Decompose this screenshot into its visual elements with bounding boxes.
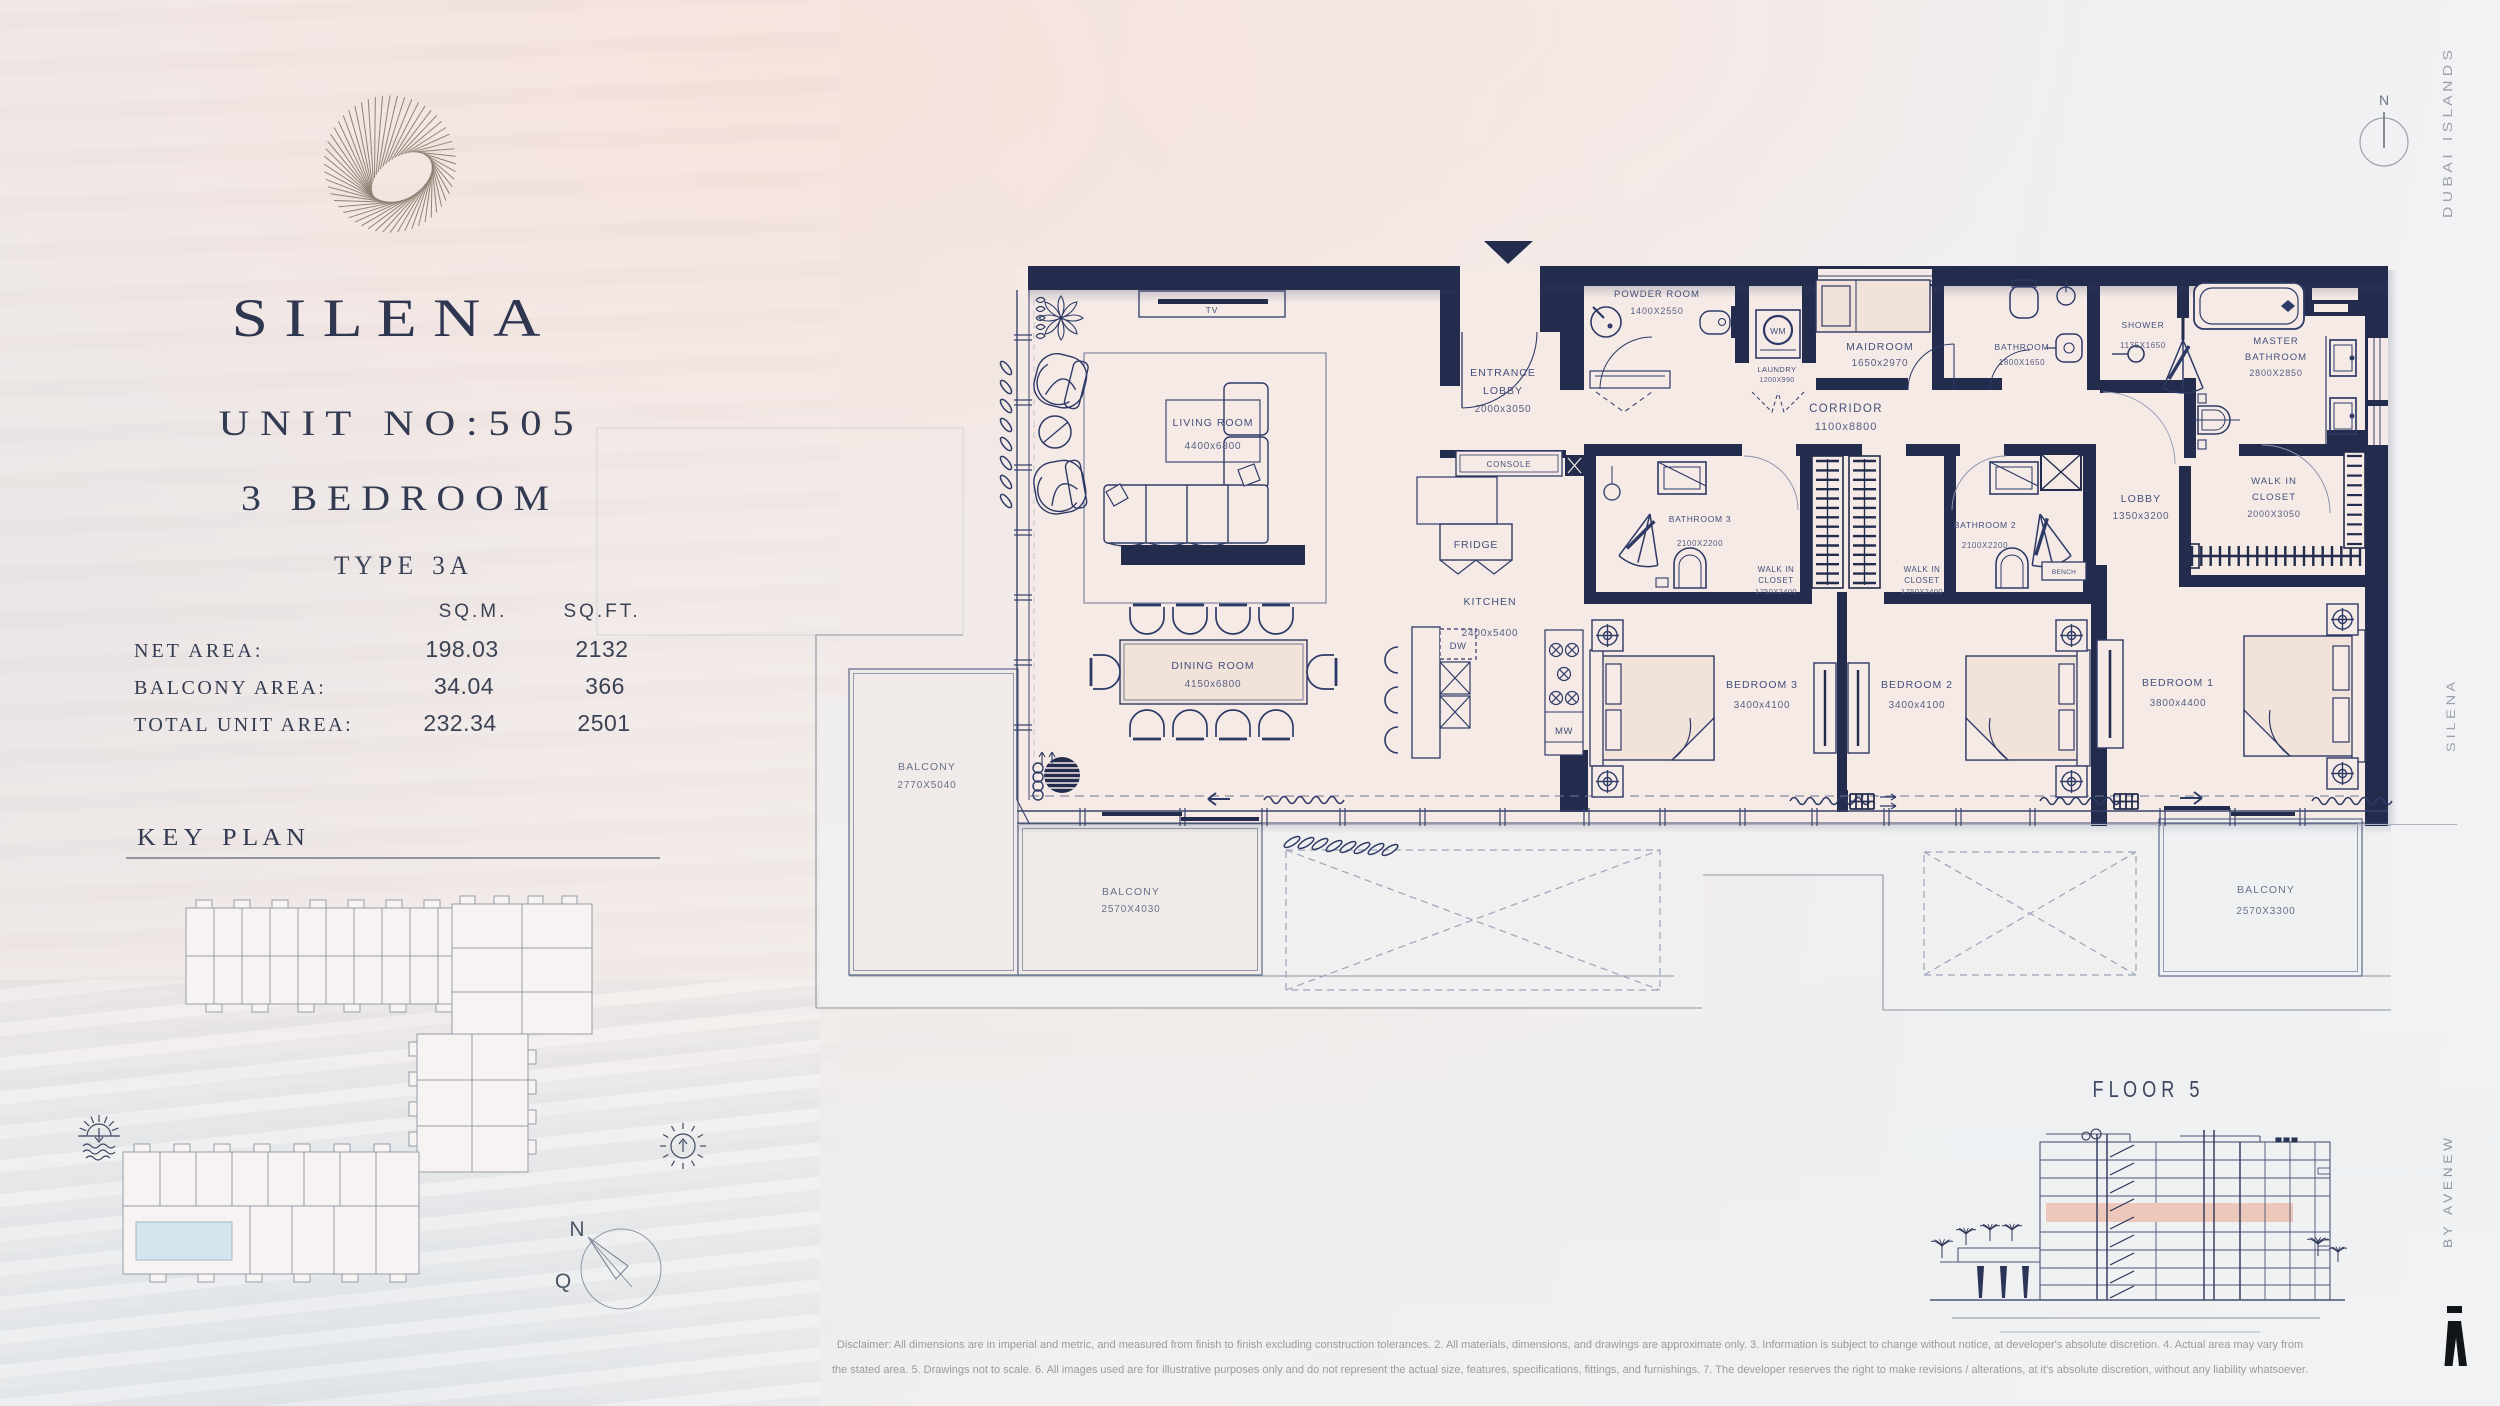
svg-text:2800X2850: 2800X2850 [2249, 368, 2302, 378]
svg-text:CLOSET: CLOSET [1904, 576, 1940, 585]
svg-text:BALCONY: BALCONY [2237, 884, 2295, 896]
svg-text:BEDROOM 2: BEDROOM 2 [1881, 679, 1953, 691]
svg-text:BALCONY AREA:: BALCONY AREA: [134, 677, 326, 699]
svg-text:N: N [2379, 92, 2389, 108]
svg-text:BATHROOM: BATHROOM [2245, 352, 2307, 363]
svg-text:2570X4030: 2570X4030 [1101, 904, 1160, 915]
svg-text:S I L E N A: S I L E N A [2444, 682, 2458, 752]
svg-text:FRIDGE: FRIDGE [1454, 539, 1498, 551]
svg-text:1100x8800: 1100x8800 [1815, 421, 1878, 433]
svg-text:2501: 2501 [577, 710, 630, 736]
svg-text:WM: WM [1770, 326, 1786, 336]
svg-text:2000x3050: 2000x3050 [1475, 404, 1532, 415]
svg-text:the stated area. 5. Drawings n: the stated area. 5. Drawings not to scal… [832, 1364, 2308, 1376]
svg-text:WALK IN: WALK IN [1904, 565, 1941, 574]
svg-text:1400X2550: 1400X2550 [1630, 306, 1683, 316]
svg-text:Q: Q [555, 1270, 571, 1293]
svg-text:BALCONY: BALCONY [1102, 886, 1160, 898]
svg-text:2770X5040: 2770X5040 [897, 780, 956, 791]
svg-text:N: N [569, 1218, 584, 1241]
svg-text:1800X1650: 1800X1650 [1999, 358, 2045, 367]
svg-text:1750X2400: 1750X2400 [1901, 587, 1943, 596]
svg-text:K E Y P L A N: K E Y P L A N [137, 825, 305, 851]
svg-text:TV: TV [1206, 305, 1219, 315]
svg-text:232.34: 232.34 [423, 710, 496, 736]
svg-text:BENCH: BENCH [2052, 569, 2076, 576]
svg-text:U N I T N O : 5 0 5: U N I T N O : 5 0 5 [219, 403, 574, 443]
svg-text:POWDER ROOM: POWDER ROOM [1614, 289, 1700, 300]
svg-text:LOBBY: LOBBY [2121, 493, 2162, 505]
svg-text:WALK IN: WALK IN [1758, 565, 1795, 574]
svg-text:LAUNDRY: LAUNDRY [1757, 365, 1796, 374]
svg-text:D U B A I I S L A N D S: D U B A I I S L A N D S [2440, 50, 2455, 218]
svg-text:CLOSET: CLOSET [2252, 492, 2296, 503]
svg-text:B Y A V E N E W: B Y A V E N E W [2441, 1137, 2455, 1248]
svg-text:BALCONY: BALCONY [898, 761, 956, 773]
svg-text:2100X2200: 2100X2200 [1677, 539, 1723, 548]
svg-text:DW: DW [1450, 641, 1467, 652]
svg-text:BEDROOM 3: BEDROOM 3 [1726, 679, 1798, 691]
svg-text:T Y P E 3 A: T Y P E 3 A [334, 551, 468, 580]
svg-text:3400x4100: 3400x4100 [1889, 700, 1946, 711]
svg-text:CONSOLE: CONSOLE [1487, 460, 1532, 469]
svg-text:2100X2200: 2100X2200 [1962, 541, 2008, 550]
svg-text:1350x3200: 1350x3200 [2113, 511, 2170, 522]
svg-text:2000X3050: 2000X3050 [2247, 509, 2300, 519]
svg-text:SQ.M.: SQ.M. [439, 601, 508, 622]
svg-text:1650x2970: 1650x2970 [1852, 358, 1909, 369]
svg-text:SHOWER: SHOWER [2121, 320, 2164, 330]
svg-text:Disclaimer: All dimensions are: Disclaimer: All dimensions are in imperi… [837, 1339, 2303, 1351]
svg-text:198.03: 198.03 [425, 636, 498, 662]
svg-text:4400x6800: 4400x6800 [1185, 441, 1242, 452]
svg-text:LIVING ROOM: LIVING ROOM [1172, 417, 1253, 429]
svg-text:NET AREA:: NET AREA: [134, 640, 263, 662]
svg-text:MASTER: MASTER [2253, 336, 2299, 347]
svg-text:2400x5400: 2400x5400 [1462, 628, 1519, 639]
svg-text:3400x4100: 3400x4100 [1734, 700, 1791, 711]
svg-text:2132: 2132 [575, 636, 628, 662]
svg-text:TOTAL UNIT AREA:: TOTAL UNIT AREA: [134, 714, 353, 736]
svg-text:BATHROOM 3: BATHROOM 3 [1669, 514, 1732, 524]
svg-text:CORRIDOR: CORRIDOR [1809, 403, 1883, 415]
svg-text:1135X1650: 1135X1650 [2120, 341, 2166, 350]
svg-text:3 B E D R O O M: 3 B E D R O O M [241, 478, 549, 518]
svg-text:CLOSET: CLOSET [1758, 576, 1794, 585]
svg-text:366: 366 [585, 673, 625, 699]
svg-text:KITCHEN: KITCHEN [1463, 596, 1516, 608]
svg-text:MW: MW [1555, 726, 1573, 737]
svg-text:3800x4400: 3800x4400 [2150, 698, 2207, 709]
svg-text:34.04: 34.04 [434, 673, 494, 699]
svg-text:DINING ROOM: DINING ROOM [1171, 660, 1254, 672]
svg-text:1200X990: 1200X990 [1759, 377, 1794, 384]
svg-text:WALK IN: WALK IN [2251, 476, 2297, 487]
svg-text:1750X2400: 1750X2400 [1755, 587, 1797, 596]
svg-text:ENTRANCE: ENTRANCE [1470, 367, 1536, 379]
svg-text:MAIDROOM: MAIDROOM [1846, 341, 1914, 353]
svg-text:BEDROOM 1: BEDROOM 1 [2142, 677, 2214, 689]
svg-text:4150x6800: 4150x6800 [1185, 679, 1242, 690]
svg-text:SQ.FT.: SQ.FT. [563, 601, 640, 622]
svg-text:F L O O R 5: F L O O R 5 [2093, 1076, 2200, 1102]
svg-text:S I L E N A: S I L E N A [232, 288, 541, 348]
svg-text:2570X3300: 2570X3300 [2236, 906, 2295, 917]
svg-text:BATHROOM 2: BATHROOM 2 [1954, 520, 2017, 530]
svg-text:LOBBY: LOBBY [1483, 385, 1523, 397]
